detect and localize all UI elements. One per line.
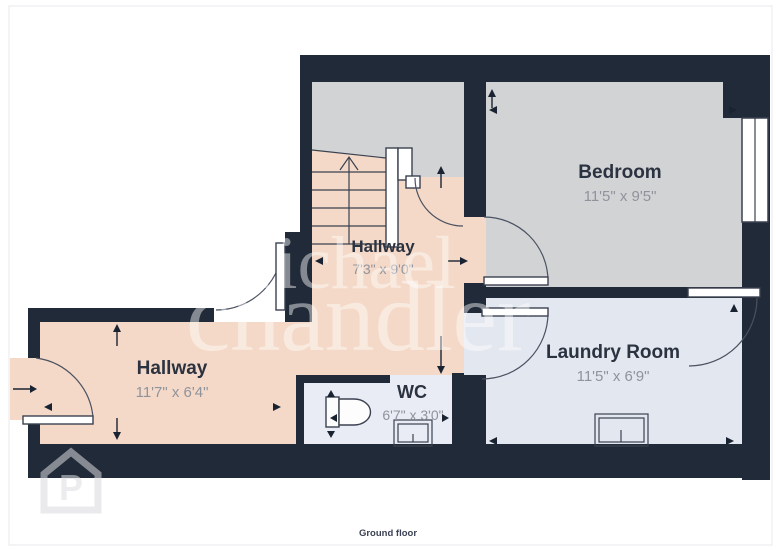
bedroom-floor (486, 82, 742, 287)
bedroom-window (742, 118, 768, 222)
wc-name: WC (397, 382, 427, 402)
wc-dims: 6'7" x 3'0" (382, 407, 443, 423)
floor-caption: Ground floor (359, 528, 417, 539)
stair-newel (398, 148, 412, 180)
hallway-lower-dims: 11'7" x 6'4" (136, 384, 209, 401)
logo-letter: P (59, 467, 83, 508)
floorplan-page: Hallway 7'3" x 9'0" Bedroom 11'5" x 9'5"… (0, 0, 778, 550)
stair-step-block (406, 176, 420, 188)
laundry-dims: 11'5" x 6'9" (577, 368, 650, 385)
watermark-line2: chandler (186, 261, 530, 372)
toilet-cistern (326, 397, 339, 427)
exterior-door-leaf (688, 288, 760, 297)
floorplan-svg: Hallway 7'3" x 9'0" Bedroom 11'5" x 9'5"… (0, 0, 778, 550)
toilet-bowl (339, 399, 371, 425)
bedroom-name: Bedroom (578, 162, 661, 183)
bedroom-dims: 11'5" x 9'5" (584, 188, 657, 205)
entrance-door-leaf (23, 416, 93, 424)
laundry-name: Laundry Room (546, 342, 680, 363)
